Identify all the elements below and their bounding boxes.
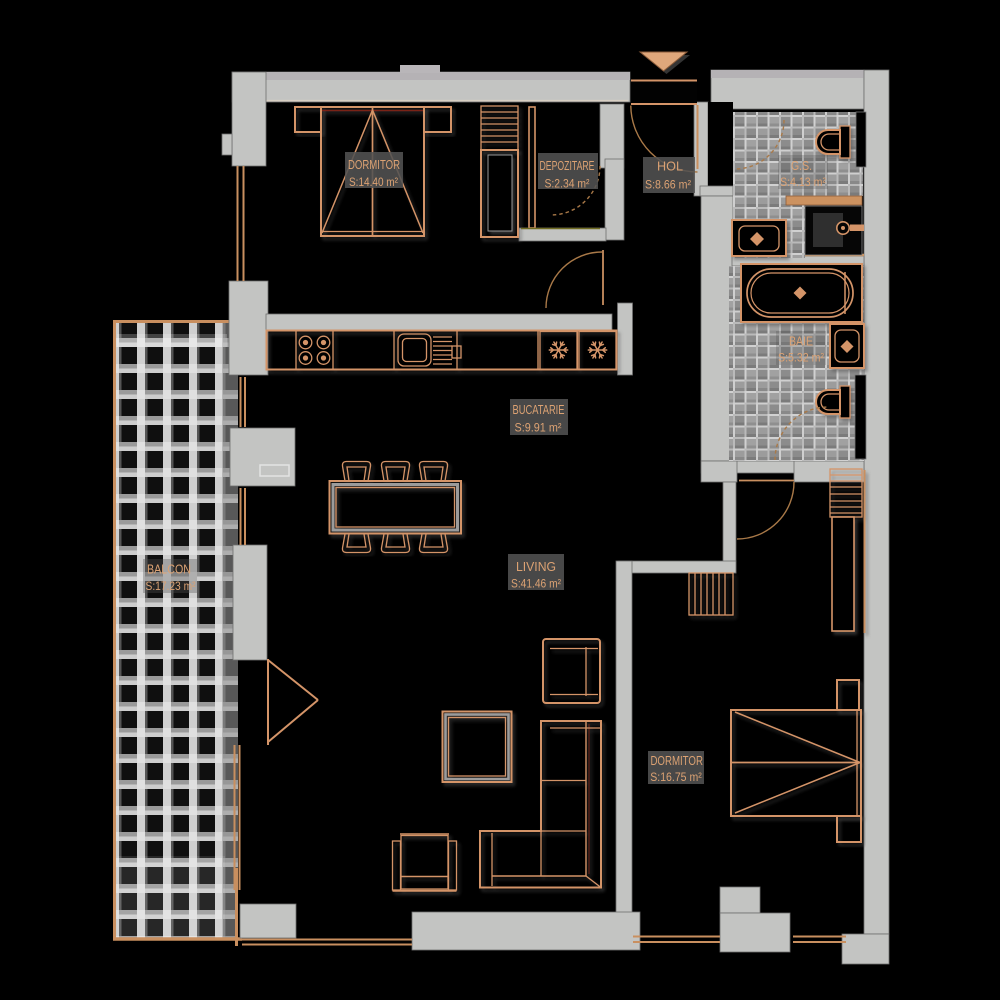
svg-text:S:9.91 m²: S:9.91 m² [515, 421, 562, 435]
svg-text:DORMITOR: DORMITOR [650, 753, 703, 768]
svg-text:S:8.66 m²: S:8.66 m² [645, 178, 691, 192]
svg-text:S:5.32 m²: S:5.32 m² [778, 351, 824, 365]
svg-text:S:4.13 m²: S:4.13 m² [780, 175, 826, 189]
svg-text:S:14.40 m²: S:14.40 m² [349, 175, 398, 189]
svg-text:S:17.23 m²: S:17.23 m² [146, 579, 196, 593]
svg-text:S:16.75 m²: S:16.75 m² [650, 770, 702, 784]
svg-text:BALCON: BALCON [147, 562, 191, 577]
svg-text:BAIE: BAIE [789, 334, 813, 349]
svg-text:G.S.: G.S. [791, 158, 812, 173]
svg-text:HOL: HOL [657, 159, 683, 174]
svg-text:LIVING: LIVING [516, 559, 556, 574]
svg-text:DEPOZITARE: DEPOZITARE [540, 158, 595, 173]
svg-text:S:2.34 m²: S:2.34 m² [545, 177, 590, 191]
svg-text:BUCATARIE: BUCATARIE [513, 402, 565, 417]
svg-text:S:41.46 m²: S:41.46 m² [511, 577, 561, 591]
svg-text:DORMITOR: DORMITOR [348, 157, 400, 172]
